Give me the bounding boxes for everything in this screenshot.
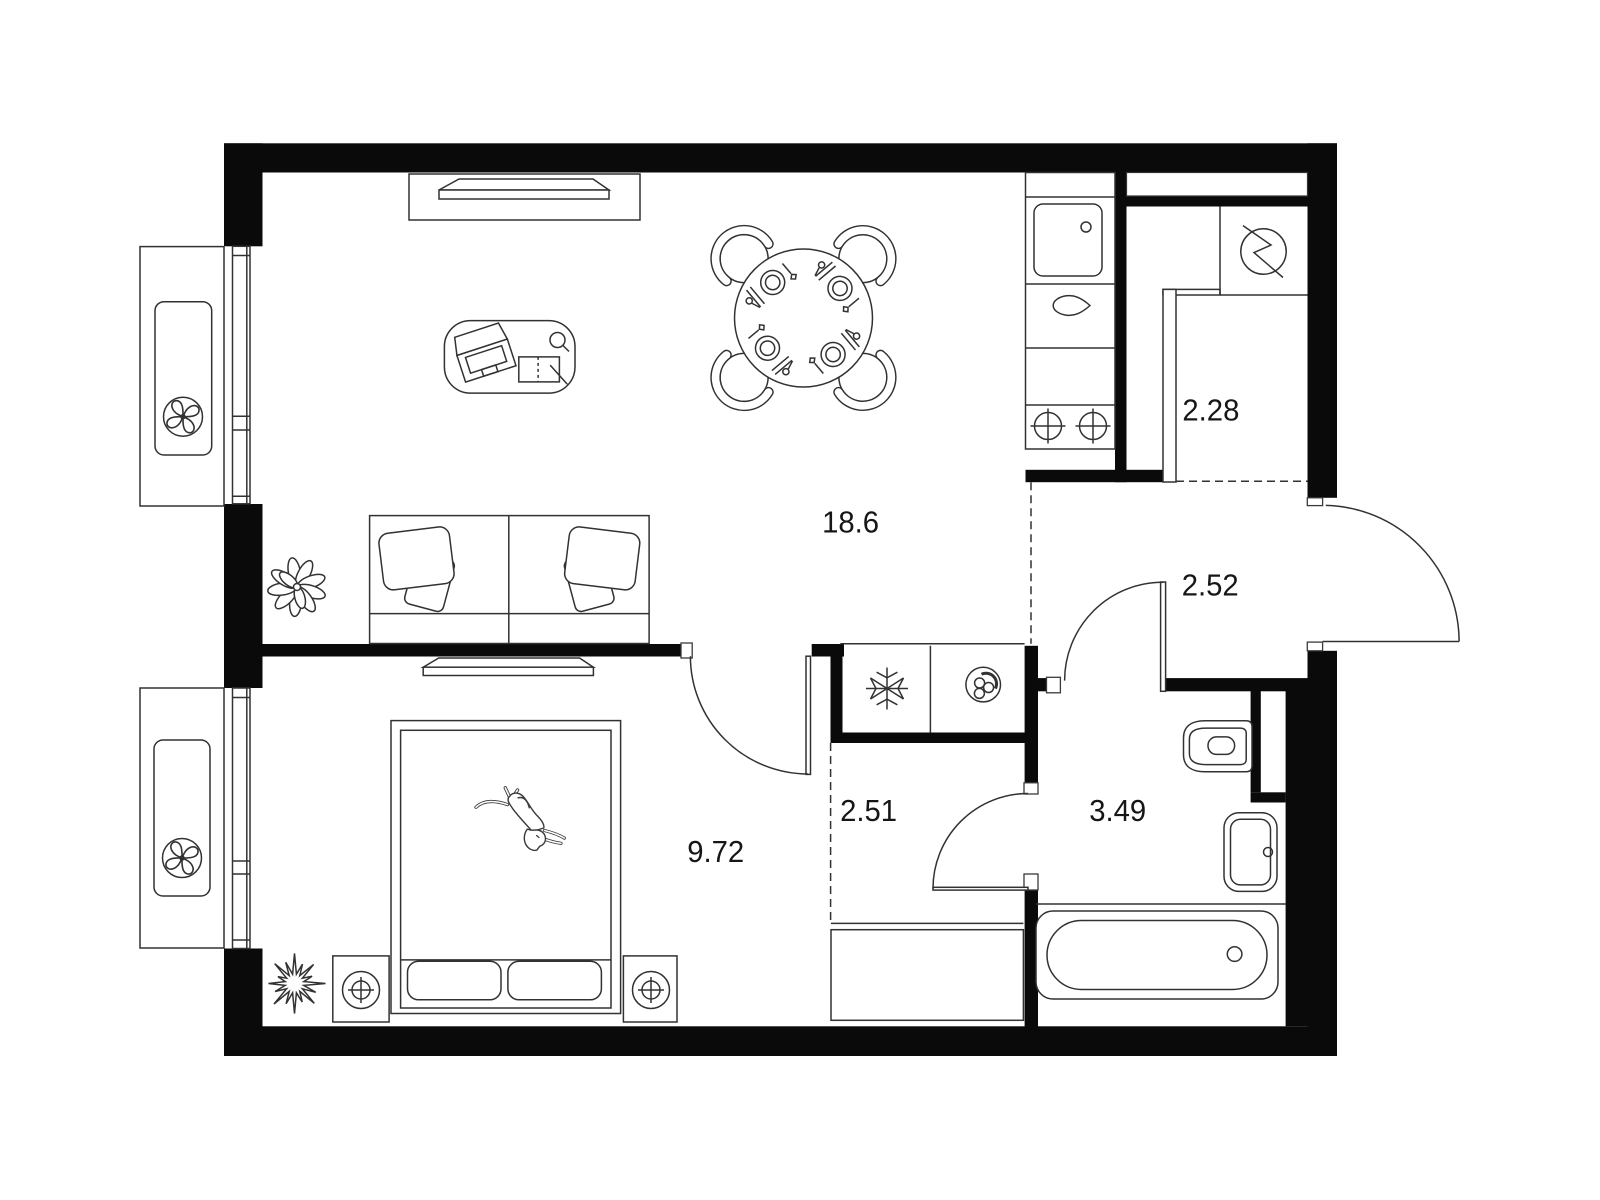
svg-text:2.51: 2.51 [840, 793, 897, 828]
svg-text:9.72: 9.72 [687, 834, 744, 869]
svg-text:3.49: 3.49 [1089, 793, 1146, 828]
svg-text:2.52: 2.52 [1182, 568, 1239, 603]
svg-text:18.6: 18.6 [822, 505, 879, 540]
svg-text:2.28: 2.28 [1182, 392, 1239, 427]
